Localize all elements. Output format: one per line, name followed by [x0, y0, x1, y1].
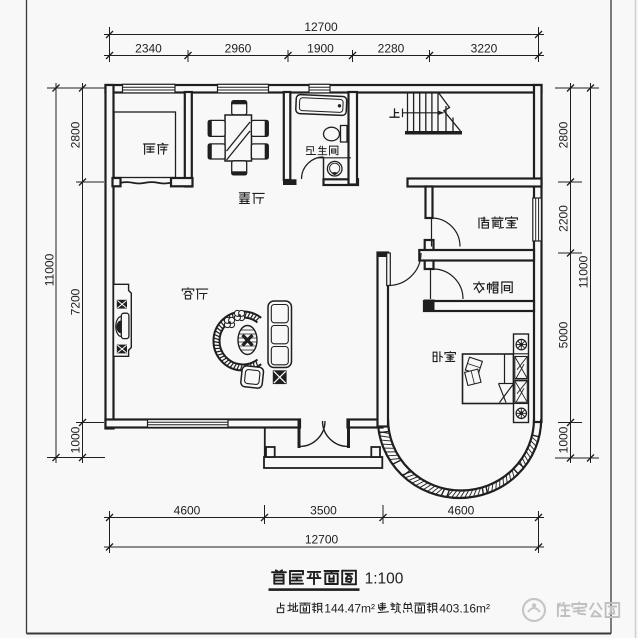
svg-text:2200: 2200: [557, 205, 571, 232]
svg-text:12700: 12700: [304, 20, 338, 34]
svg-text:1:100: 1:100: [365, 571, 404, 588]
svg-text:12700: 12700: [305, 533, 339, 547]
svg-text:7200: 7200: [69, 288, 83, 315]
svg-text:2340: 2340: [135, 42, 162, 56]
svg-text:1000: 1000: [69, 426, 83, 453]
svg-text:11000: 11000: [43, 253, 57, 286]
svg-text:1000: 1000: [557, 426, 571, 453]
svg-text:2960: 2960: [225, 42, 252, 56]
svg-text:2280: 2280: [378, 42, 405, 56]
svg-text:1900: 1900: [307, 42, 334, 56]
svg-text:5000: 5000: [557, 321, 571, 348]
svg-text:4600: 4600: [448, 504, 475, 518]
svg-text:403.16m²: 403.16m²: [439, 601, 490, 615]
svg-text:2800: 2800: [557, 121, 571, 148]
svg-text:3220: 3220: [471, 42, 498, 56]
svg-text:144.47m²: 144.47m²: [324, 601, 375, 615]
svg-text:4600: 4600: [174, 504, 201, 518]
svg-text:2800: 2800: [69, 121, 83, 148]
svg-text:11000: 11000: [577, 255, 591, 288]
svg-text:3500: 3500: [310, 504, 337, 518]
